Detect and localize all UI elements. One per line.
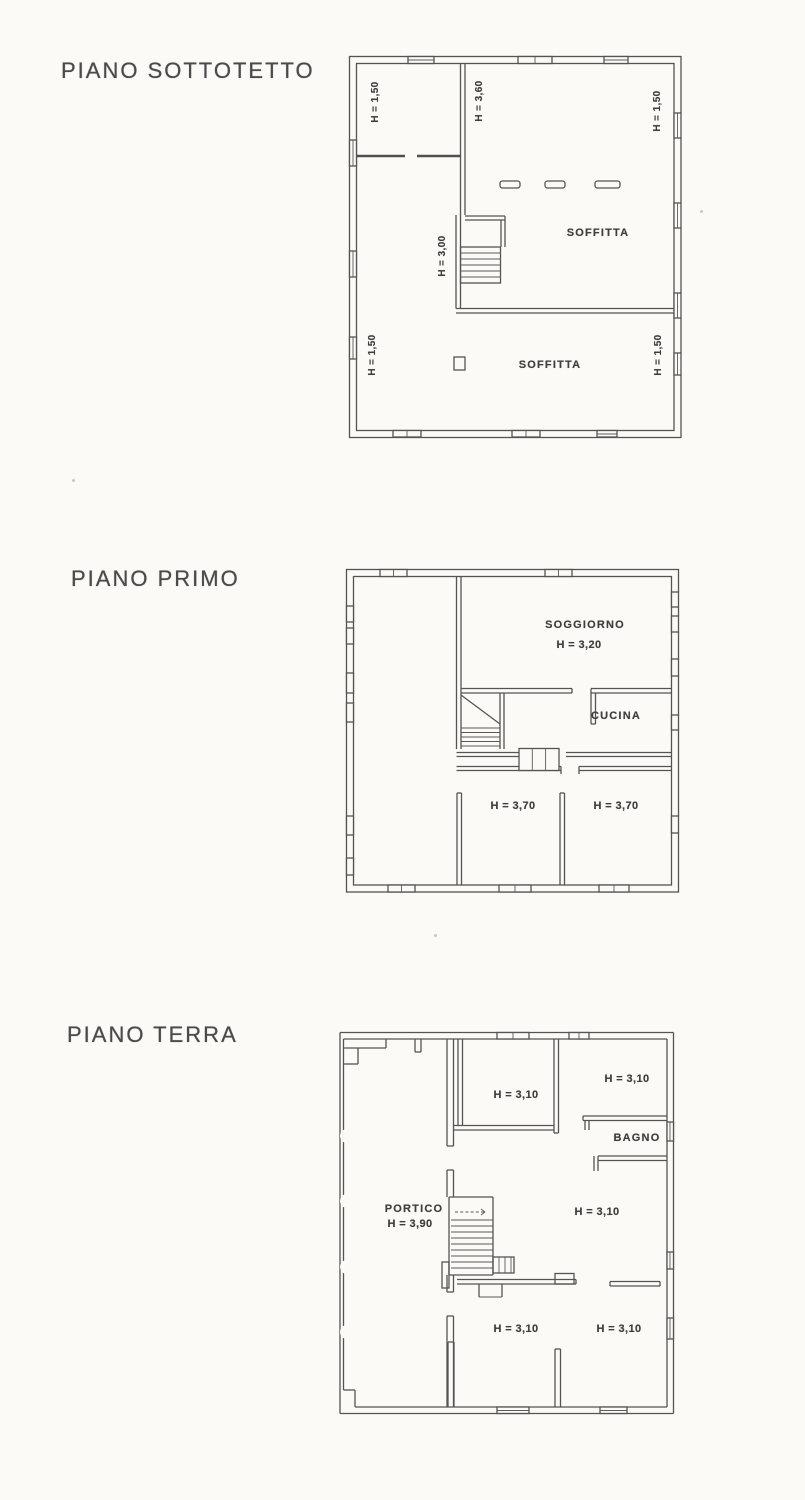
- portico-structure: [344, 1039, 422, 1064]
- ground-floor-staircase: [442, 1197, 514, 1288]
- camera-left-height-label: H = 3,70: [490, 800, 535, 812]
- floor-title-terra: PIANO TERRA: [67, 1022, 238, 1048]
- portico-columns: [340, 1129, 354, 1339]
- soggiorno-label: SOGGIORNO: [545, 619, 625, 631]
- attic-right-upper-height-label: H = 1,50: [652, 90, 663, 131]
- cucina-label: CUCINA: [591, 710, 641, 722]
- attic-staircase: [461, 216, 506, 283]
- floor-title-sottotetto: PIANO SOTTOTETTO: [61, 58, 315, 84]
- attic-ridge-height-label: H = 3,60: [474, 80, 485, 121]
- terra-room-top-center-height-label: H = 3,10: [493, 1089, 538, 1101]
- first-floor-inner-walls: [457, 577, 672, 750]
- attic-left-lower-height-label: H = 1,50: [367, 334, 378, 375]
- first-floor-balcony-band: [457, 748, 672, 774]
- first-floor-outer-walls: [347, 570, 679, 893]
- attic-windows: [349, 56, 682, 438]
- first-floor-windows: [346, 569, 680, 893]
- attic-right-lower-height-label: H = 1,50: [653, 334, 664, 375]
- portico-height-label: H = 3,90: [387, 1218, 432, 1230]
- attic-left-upper-height-label: H = 1,50: [370, 81, 381, 122]
- attic-roof-windows: [500, 181, 620, 188]
- attic-stair-height-label: H = 3,00: [437, 235, 448, 276]
- soggiorno-height-label: H = 3,20: [556, 639, 601, 651]
- portico-label: PORTICO: [385, 1203, 444, 1215]
- attic-outer-walls: [350, 57, 682, 438]
- scan-speck: [72, 479, 75, 482]
- scanned-floor-plan-page: { "document": { "background": "#fbfaf7",…: [0, 0, 805, 1500]
- scan-speck: [434, 934, 437, 937]
- attic-soffitta-upper-label: SOFFITTA: [567, 227, 630, 239]
- terra-room-mid-right-height-label: H = 3,10: [574, 1206, 619, 1218]
- sheet: PIANO SOTTOTETTO: [0, 0, 805, 1500]
- bagno-label: BAGNO: [614, 1132, 661, 1144]
- portico-column: [340, 1325, 354, 1339]
- terra-room-top-right-height-label: H = 3,10: [604, 1073, 649, 1085]
- portico-column: [340, 1194, 354, 1208]
- terra-room-bottom-right-height-label: H = 3,10: [596, 1323, 641, 1335]
- floor-plan-sottotetto-drawing: H = 1,50 H = 3,60 H = 1,50 H = 3,00 SOFF…: [348, 55, 682, 440]
- scan-speck: [700, 210, 703, 213]
- portico-column: [340, 1260, 354, 1274]
- floor-plan-primo-drawing: SOGGIORNO H = 3,20 CUCINA H = 3,70 H = 3…: [345, 568, 680, 895]
- floor-plan-terra-drawing: H = 3,10 H = 3,10 BAGNO PORTICO H = 3,90…: [336, 1026, 678, 1418]
- portico-column: [340, 1129, 354, 1143]
- camera-right-height-label: H = 3,70: [593, 800, 638, 812]
- floor-title-primo: PIANO PRIMO: [71, 566, 240, 592]
- first-floor-staircase: [461, 695, 500, 746]
- attic-chimney: [454, 357, 465, 370]
- terra-room-bottom-left-height-label: H = 3,10: [493, 1323, 538, 1335]
- attic-soffitta-lower-label: SOFFITTA: [519, 359, 582, 371]
